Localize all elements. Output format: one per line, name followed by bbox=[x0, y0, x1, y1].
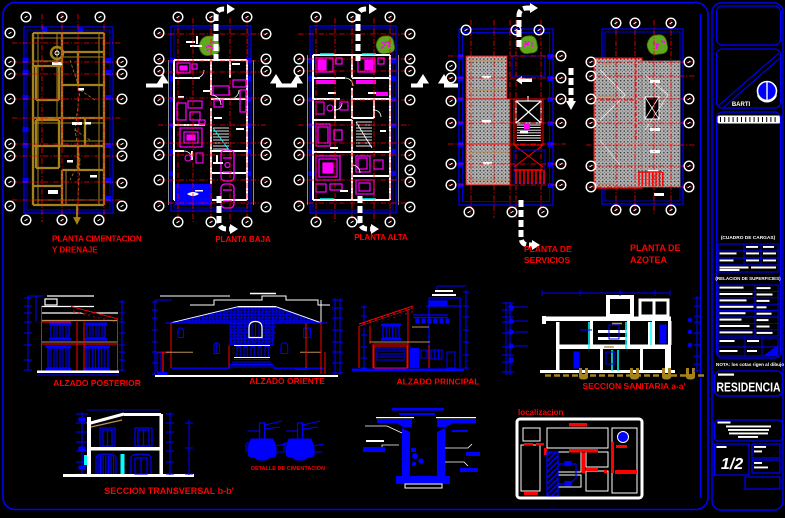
svg-text:localizacion: localizacion bbox=[518, 408, 563, 417]
svg-text:Y DRENAJE: Y DRENAJE bbox=[52, 246, 98, 255]
svg-text:SERVICIOS: SERVICIOS bbox=[524, 255, 570, 265]
svg-text:AZOTEA: AZOTEA bbox=[630, 255, 667, 265]
svg-text:NOTA: los cotas rigen al dibu: NOTA: los cotas rigen al dibujo bbox=[716, 362, 784, 367]
svg-text:PLANTA DE: PLANTA DE bbox=[524, 244, 572, 254]
svg-text:1/2: 1/2 bbox=[721, 456, 743, 473]
svg-text:ALZADO POSTERIOR: ALZADO POSTERIOR bbox=[53, 378, 141, 388]
svg-text:ALZADO PRINCIPAL: ALZADO PRINCIPAL bbox=[397, 377, 480, 387]
svg-text:SECCION SANITARIA a-a': SECCION SANITARIA a-a' bbox=[582, 381, 685, 391]
svg-text:RESIDENCIA: RESIDENCIA bbox=[717, 381, 781, 395]
svg-text:ALZADO ORIENTE: ALZADO ORIENTE bbox=[249, 376, 325, 386]
svg-text:SECCION TRANSVERSAL b-b': SECCION TRANSVERSAL b-b' bbox=[104, 486, 233, 496]
svg-text:(CUADRO DE CARGAS): (CUADRO DE CARGAS) bbox=[721, 235, 776, 241]
svg-text:PLANTA CIMENTACION: PLANTA CIMENTACION bbox=[52, 235, 142, 244]
svg-text:PLANTA ALTA: PLANTA ALTA bbox=[354, 233, 408, 242]
svg-text:PLANTA DE: PLANTA DE bbox=[630, 243, 681, 253]
svg-text:PLANTA BAJA: PLANTA BAJA bbox=[215, 235, 271, 244]
svg-text:BARTI: BARTI bbox=[732, 102, 751, 108]
svg-text:DETALLE DE CIMENTACION: DETALLE DE CIMENTACION bbox=[251, 466, 325, 472]
svg-text:(RELACION DE SUPERFICIES): (RELACION DE SUPERFICIES) bbox=[715, 276, 781, 281]
